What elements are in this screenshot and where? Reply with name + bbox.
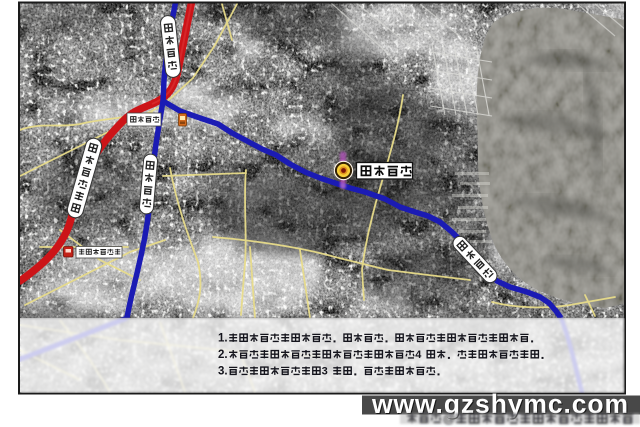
svg-text:4: 4 bbox=[415, 349, 422, 361]
svg-text:3.: 3. bbox=[218, 366, 228, 378]
svg-text:2.: 2. bbox=[218, 349, 228, 361]
svg-text:3: 3 bbox=[322, 366, 328, 378]
svg-text:1.: 1. bbox=[218, 333, 228, 345]
